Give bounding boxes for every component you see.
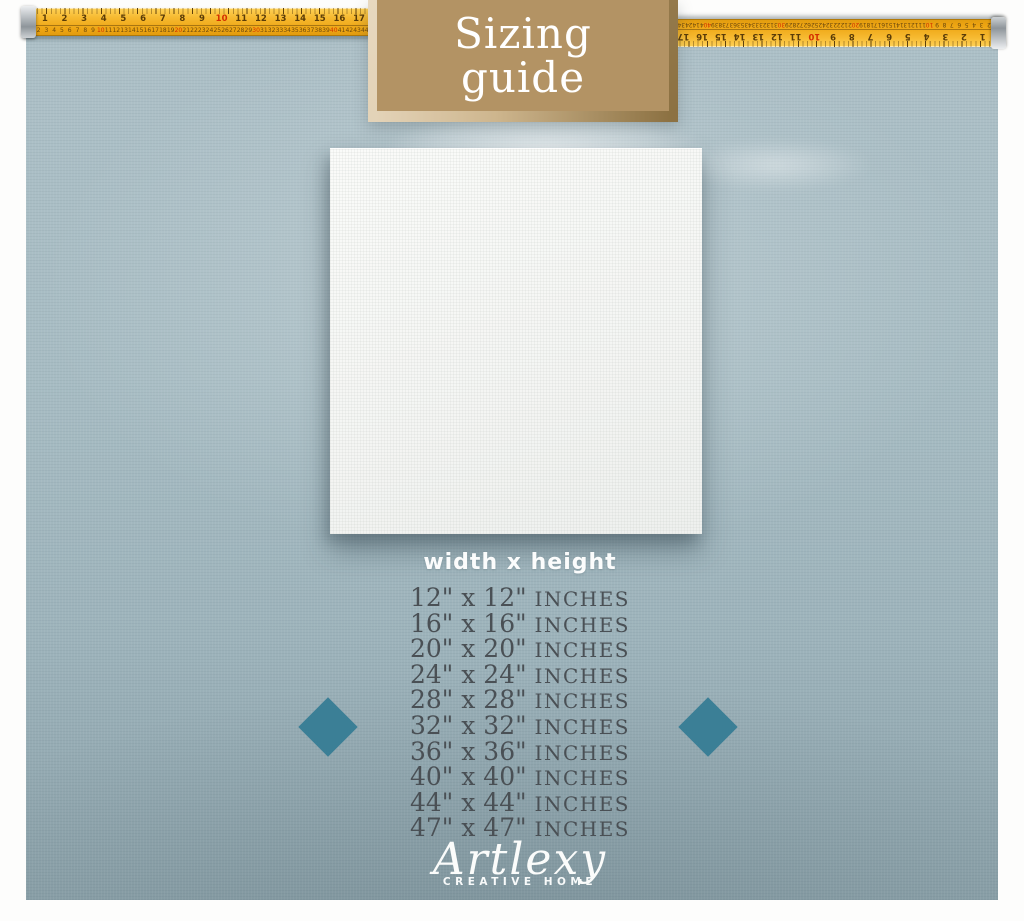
tape-cm-label: 27	[229, 26, 237, 35]
tape-cm-label: 5	[963, 20, 970, 29]
tape-inch-label: 7	[861, 31, 880, 41]
blank-canvas	[330, 148, 702, 534]
tape-cm-label: 29	[785, 20, 792, 29]
size-unit: INCHES	[535, 587, 630, 611]
tape-cm-label: 17	[874, 20, 881, 29]
tape-metal-tip	[991, 17, 1006, 49]
tape-tick-marks	[675, 41, 999, 47]
tape-cm-label: 19	[167, 26, 175, 35]
tape-cm-label: 19	[859, 20, 866, 29]
tape-inch-label: 5	[114, 14, 134, 24]
tape-cm-label: 41	[696, 20, 703, 29]
tape-cm-label: 35	[741, 20, 748, 29]
tape-cm-label: 24	[822, 20, 829, 29]
tape-cm-label: 3	[978, 20, 985, 29]
tape-inch-label: 3	[936, 31, 955, 41]
tape-cm-label: 21	[844, 20, 851, 29]
brand-tagline: CREATIVE HOME	[0, 876, 1024, 888]
tape-cm-label: 11	[105, 26, 113, 35]
tape-cm-label: 6	[956, 20, 963, 29]
tape-cm-label: 38	[719, 20, 726, 29]
tape-inch-label: 2	[55, 14, 75, 24]
tape-cm-label: 13	[904, 20, 911, 29]
tape-cm-label: 35	[291, 26, 299, 35]
tape-inch-label: 6	[880, 31, 899, 41]
tape-cm-label: 38	[314, 26, 322, 35]
tape-cm-label: 13	[120, 26, 128, 35]
tape-inch-label: 9	[824, 31, 843, 41]
tape-cm-label: 14	[896, 20, 903, 29]
banner-title-line1: Sizing	[377, 12, 669, 56]
tape-inch-label: 16	[330, 14, 350, 24]
tape-cm-label: 11	[919, 20, 926, 29]
tape-cm-label: 17	[151, 26, 159, 35]
tape-inch-label: 15	[310, 14, 330, 24]
tape-cm-label: 9	[933, 20, 940, 29]
tape-cm-label: 10	[97, 26, 105, 35]
tape-inch-label: 8	[172, 14, 192, 24]
tape-inch-label: 10	[805, 31, 824, 41]
tape-cm-numbers: 1234567891011121314151617181920212223242…	[672, 20, 1002, 30]
tape-cm-label: 26	[221, 26, 229, 35]
tape-cm-label: 16	[882, 20, 889, 29]
tape-cm-label: 22	[190, 26, 198, 35]
tape-cm-label: 41	[338, 26, 346, 35]
tape-cm-label: 27	[800, 20, 807, 29]
tape-cm-label: 33	[276, 26, 284, 35]
tape-cm-label: 5	[58, 26, 66, 35]
tape-inch-label: 17	[349, 14, 369, 24]
tape-inch-label: 7	[153, 14, 173, 24]
tape-cm-label: 24	[206, 26, 214, 35]
tape-cm-label: 7	[74, 26, 82, 35]
tape-cm-label: 25	[815, 20, 822, 29]
tape-cm-label: 42	[345, 26, 353, 35]
size-heading: width x height	[0, 550, 1024, 575]
tape-cm-label: 32	[763, 20, 770, 29]
size-unit: INCHES	[535, 715, 630, 739]
tape-cm-label: 4	[970, 20, 977, 29]
tape-cm-label: 3	[43, 26, 51, 35]
tape-inch-label: 11	[231, 14, 251, 24]
tape-cm-label: 8	[81, 26, 89, 35]
sizing-guide-banner: Sizing guide	[368, 0, 678, 122]
tape-cm-label: 32	[268, 26, 276, 35]
size-unit: INCHES	[535, 792, 630, 816]
tape-cm-label: 8	[941, 20, 948, 29]
tape-inch-label: 2	[955, 31, 974, 41]
measuring-tape-left: 1234567891011121314151617 12345678910111…	[25, 8, 371, 36]
tape-inch-label: 11	[786, 31, 805, 41]
size-unit: INCHES	[535, 638, 630, 662]
tape-cm-label: 37	[307, 26, 315, 35]
tape-cm-label: 18	[159, 26, 167, 35]
tape-cm-label: 12	[112, 26, 120, 35]
tape-inch-label: 14	[290, 14, 310, 24]
tape-inch-label: 4	[917, 31, 936, 41]
tape-cm-label: 36	[299, 26, 307, 35]
tape-inch-label: 10	[212, 14, 232, 24]
tape-cm-label: 42	[689, 20, 696, 29]
tape-cm-label: 39	[711, 20, 718, 29]
tape-inch-label: 13	[271, 14, 291, 24]
tape-inch-label: 12	[768, 31, 787, 41]
tape-cm-label: 43	[682, 20, 689, 29]
tape-cm-label: 16	[143, 26, 151, 35]
tape-cm-label: 15	[136, 26, 144, 35]
size-list: 12" x 12" INCHES16" x 16" INCHES20" x 20…	[0, 586, 1024, 842]
tape-inch-label: 12	[251, 14, 271, 24]
size-unit: INCHES	[535, 613, 630, 637]
tape-cm-label: 40	[704, 20, 711, 29]
size-unit: INCHES	[535, 689, 630, 713]
tape-cm-label: 23	[830, 20, 837, 29]
tape-cm-label: 7	[948, 20, 955, 29]
tape-metal-tip	[21, 6, 36, 38]
tape-cm-label: 34	[748, 20, 755, 29]
tape-cm-label: 18	[867, 20, 874, 29]
tape-inch-label: 8	[842, 31, 861, 41]
tape-cm-label: 10	[926, 20, 933, 29]
tape-cm-label: 15	[889, 20, 896, 29]
tape-inch-label: 5	[898, 31, 917, 41]
tape-cm-label: 31	[770, 20, 777, 29]
measuring-tape-right: 1234567891011121314151617 12345678910111…	[672, 19, 1002, 47]
sizing-guide-page: 1234567891011121314151617 12345678910111…	[0, 0, 1024, 921]
tape-inch-label: 4	[94, 14, 114, 24]
tape-inch-label: 1	[35, 14, 55, 24]
tape-cm-label: 26	[807, 20, 814, 29]
tape-cm-label: 22	[837, 20, 844, 29]
tape-inch-label: 6	[133, 14, 153, 24]
size-unit: INCHES	[535, 766, 630, 790]
tape-inch-label: 9	[192, 14, 212, 24]
tape-inch-label: 14	[730, 31, 749, 41]
tape-cm-label: 28	[793, 20, 800, 29]
tape-cm-label: 23	[198, 26, 206, 35]
tape-inch-label: 1	[973, 31, 992, 41]
tape-cm-label: 4	[50, 26, 58, 35]
size-unit: INCHES	[535, 664, 630, 688]
tape-cm-label: 31	[260, 26, 268, 35]
size-unit: INCHES	[535, 741, 630, 765]
tape-inch-label: 13	[749, 31, 768, 41]
tape-cm-label: 20	[175, 26, 183, 35]
tape-cm-label: 20	[852, 20, 859, 29]
tape-cm-label: 36	[733, 20, 740, 29]
tape-inch-label: 3	[74, 14, 94, 24]
tape-inch-label: 16	[693, 31, 712, 41]
tape-cm-label: 30	[778, 20, 785, 29]
tape-cm-label: 25	[213, 26, 221, 35]
tape-cm-label: 33	[756, 20, 763, 29]
tape-cm-label: 30	[252, 26, 260, 35]
tape-cm-label: 43	[353, 26, 361, 35]
tape-cm-label: 14	[128, 26, 136, 35]
tape-cm-label: 40	[330, 26, 338, 35]
tape-inch-numbers: 1234567891011121314151617	[25, 14, 371, 25]
banner-title-line2: guide	[377, 56, 669, 100]
tape-cm-label: 9	[89, 26, 97, 35]
tape-cm-label: 6	[66, 26, 74, 35]
tape-cm-label: 21	[182, 26, 190, 35]
tape-cm-label: 37	[726, 20, 733, 29]
tape-cm-label: 39	[322, 26, 330, 35]
tape-cm-label: 29	[244, 26, 252, 35]
tape-inch-label: 15	[711, 31, 730, 41]
tape-inch-numbers: 1234567891011121314151617	[672, 30, 1002, 41]
tape-cm-numbers: 1234567891011121314151617181920212223242…	[25, 25, 371, 35]
tape-cm-label: 28	[237, 26, 245, 35]
tape-cm-label: 12	[911, 20, 918, 29]
tape-cm-label: 34	[283, 26, 291, 35]
